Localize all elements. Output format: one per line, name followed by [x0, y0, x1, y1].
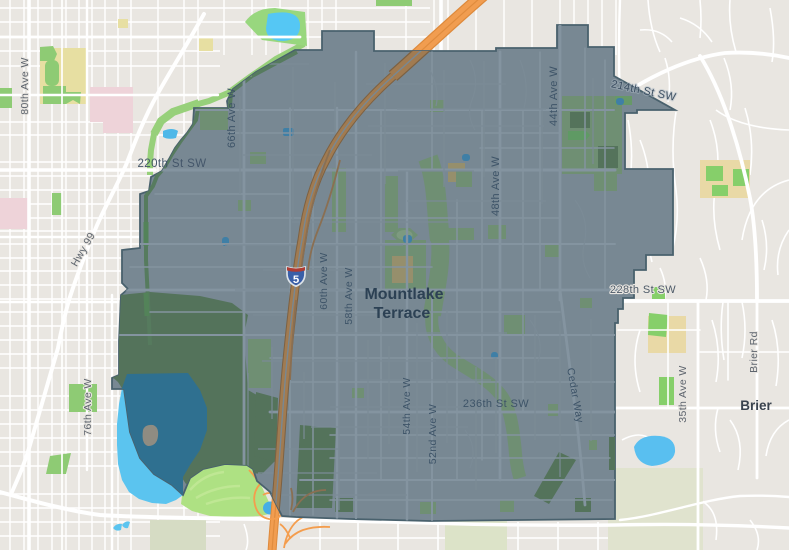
svg-text:76th Ave W: 76th Ave W — [82, 378, 94, 436]
svg-text:Brier Rd: Brier Rd — [748, 331, 760, 373]
svg-text:Brier: Brier — [740, 398, 772, 413]
svg-text:228th St SW: 228th St SW — [610, 284, 676, 296]
svg-text:Terrace: Terrace — [374, 305, 431, 322]
svg-text:66th Ave W: 66th Ave W — [226, 88, 238, 148]
svg-text:52nd Ave W: 52nd Ave W — [427, 404, 439, 464]
svg-text:60th Ave W: 60th Ave W — [318, 252, 330, 310]
svg-text:80th Ave W: 80th Ave W — [19, 57, 31, 115]
svg-text:220th St SW: 220th St SW — [138, 158, 207, 170]
svg-text:54th Ave W: 54th Ave W — [401, 377, 413, 435]
svg-text:Mountlake: Mountlake — [364, 286, 443, 303]
svg-text:35th Ave W: 35th Ave W — [677, 365, 689, 423]
svg-text:58th Ave W: 58th Ave W — [343, 267, 355, 325]
svg-text:48th Ave W: 48th Ave W — [490, 156, 502, 216]
svg-text:236th St SW: 236th St SW — [463, 398, 529, 410]
svg-text:5: 5 — [293, 274, 300, 286]
svg-text:44th Ave W: 44th Ave W — [548, 66, 560, 126]
